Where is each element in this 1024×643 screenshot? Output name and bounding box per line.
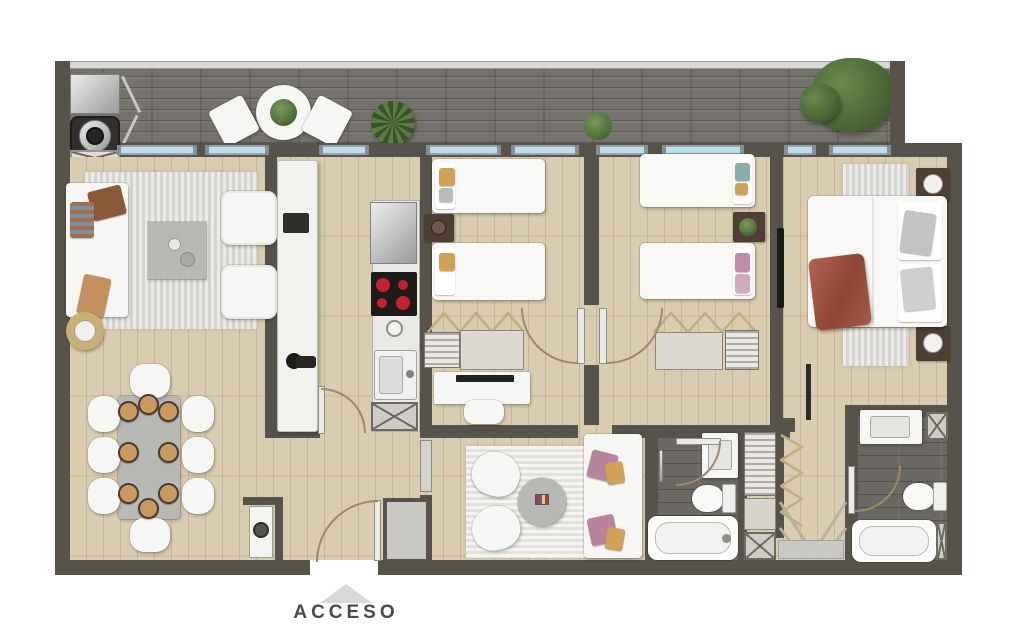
chair-cushion [118,483,139,504]
dining-chair [130,518,170,552]
desk-monitor [456,375,514,382]
wall [584,157,599,305]
master-rug [843,328,909,366]
nightstand-lamp [923,333,943,353]
master-toilet-tank [933,482,947,511]
tv [777,228,784,308]
hall-mat [778,540,844,559]
terrace-plant [584,112,612,140]
chair-cushion [118,401,139,422]
window [206,145,268,155]
desk-chair [464,400,504,424]
sofa-pillow-yellow [605,461,626,485]
sofa-pillow-yellow [604,527,626,552]
window [512,145,578,155]
entry-cabinet-bowl [253,522,269,538]
dining-chair [182,478,214,514]
bed-cushion-pink [735,253,750,272]
bedroom1-closet [460,330,524,370]
master-throw-blanket [808,253,872,331]
linen-closet-shelves [744,432,776,496]
linen-closet-cabinet [744,498,776,530]
master-bath-cabinet [926,412,948,440]
bed-cushion-yellow [735,183,748,195]
bed-cushion-teal [735,163,750,181]
chair-cushion [118,442,139,463]
master-bathtub [852,520,936,562]
table-game-box [535,494,549,505]
nightstand-plate [431,220,446,235]
wall [775,418,795,432]
bed-cushion-pink [735,274,750,293]
utility-cabinet [744,532,776,560]
hall-cabinet [420,440,432,492]
master-vanity-basin [870,416,910,438]
dining-chair [182,437,214,473]
wall [947,143,962,575]
duvet-fold [872,198,874,325]
window [830,145,890,155]
dining-chair [130,364,170,398]
espresso-machine-body [296,356,316,368]
toilet-bowl [692,485,723,512]
wall [432,425,578,438]
window [597,145,647,155]
wall [420,157,432,438]
kitchen-sink-basin [379,356,403,394]
tub-faucet [722,534,731,543]
dining-chair [182,396,214,432]
entry-arrow-icon [320,584,372,603]
bbq-grill-center [86,127,104,145]
burner [377,298,387,308]
living-armchair [221,191,277,245]
coffee-table-bowl [180,252,195,267]
chair-cushion [158,401,179,422]
living-armchair [221,265,277,319]
bedroom1-closet-shelves [424,332,460,368]
bedroom1-door-leaf [577,308,585,364]
master-bath-shelf [936,522,947,560]
master-rug [843,164,909,200]
burner [396,296,410,310]
sofa-pillow-striped [70,202,94,238]
dining-chair [88,437,120,473]
side-table-tray [74,320,96,342]
master-bath-door-leaf [848,466,855,514]
burner [376,278,390,292]
wall [378,560,962,575]
apartment-floor-plan: ACCESO [0,0,1024,643]
nightstand-lamp [923,174,943,194]
master-open-door [806,364,811,420]
bed-cushion-gray [439,188,453,202]
table-plant [270,99,297,126]
fridge [370,202,417,264]
dining-chair [88,396,120,432]
bbq-counter [70,74,120,114]
bedroom2-closet [655,332,723,370]
window [785,145,815,155]
bedroom2-closet-shelves [725,330,759,370]
chair-cushion [138,394,159,415]
burner [398,280,408,290]
chair-cushion [158,483,179,504]
wall [55,560,310,575]
bed-cushion-tan [439,168,455,186]
towel-bar [659,450,663,482]
wall [55,61,70,575]
kitchen-cabinet [371,402,418,431]
master-pillow-gray [900,266,936,311]
entry-label: ACCESO [281,602,411,624]
window [427,145,500,155]
chair-cushion [158,442,179,463]
nightstand-plant [739,218,757,236]
chair-cushion [138,498,159,519]
window [118,145,196,155]
prep-basin [386,320,403,337]
master-toilet-bowl [903,483,934,510]
coat-closet [383,498,430,563]
wall [584,365,599,425]
bed-cushion-tan [439,253,455,271]
island-tray [283,213,309,233]
kitchen-island [277,160,318,432]
wall [275,497,283,563]
coffee-table-plate [168,238,181,251]
kitchen-faucet [406,370,414,378]
terrace-palm-plant [371,101,415,145]
bedroom2-door-leaf [599,308,607,364]
dining-chair [88,478,120,514]
window [320,145,368,155]
master-pillow-gray [899,210,937,256]
terrace-railing [55,61,905,69]
toilet-tank [722,484,736,513]
